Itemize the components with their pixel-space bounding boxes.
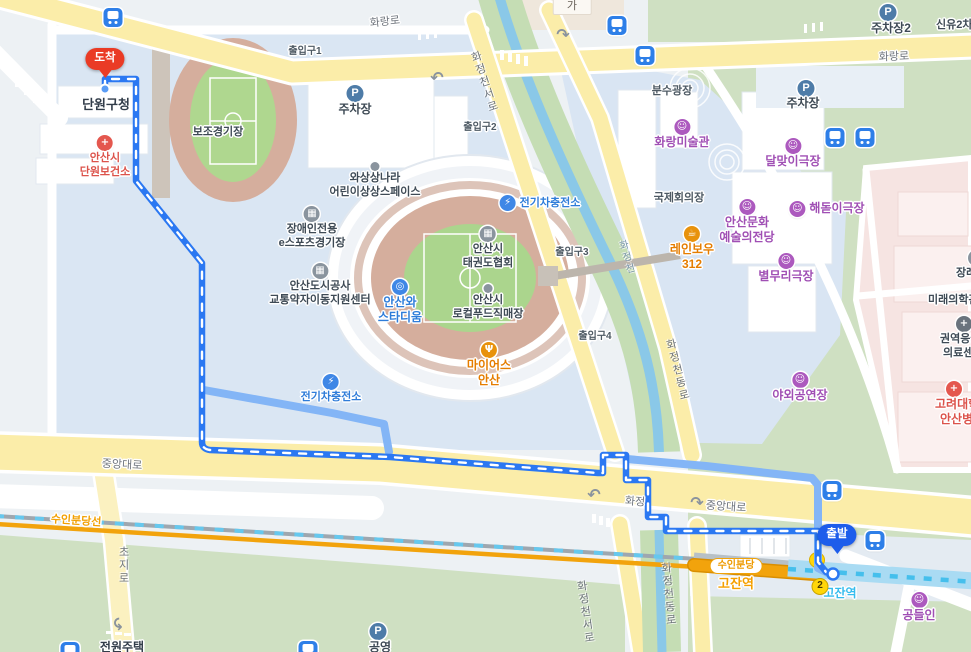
parking-icon[interactable]: P xyxy=(370,623,387,640)
departure-marker-label: 출발 xyxy=(817,524,856,546)
station-exit-2[interactable]: 2 xyxy=(812,578,829,595)
poi-taekwondo[interactable]: ▦ 안산시 태권도협회 xyxy=(463,226,514,269)
poi-localfood[interactable]: 안산시 로컬푸드직매장 xyxy=(453,284,524,320)
ev-charger-icon: ⚡ xyxy=(323,374,339,390)
uturn-arrow-icon: ↶ xyxy=(587,487,600,503)
road-label-hwajeong: 화정 xyxy=(624,495,645,509)
parking-icon[interactable]: P xyxy=(880,4,897,21)
route-start-dot xyxy=(828,569,839,580)
building-icon: ▦ xyxy=(480,226,496,242)
hospital-icon: + xyxy=(946,381,962,397)
stadium-icon: ◎ xyxy=(392,279,408,295)
cafe-icon: ☕ xyxy=(684,226,700,242)
bus-stop-icon[interactable] xyxy=(608,16,627,35)
poi-shinyu2cha: 신유2차 xyxy=(936,19,971,32)
ev-charger-icon: ⚡ xyxy=(500,195,516,211)
poi-health-center[interactable]: + 안산시 단원보건소 xyxy=(80,135,131,178)
poi-korea-univ-hospital[interactable]: + 고려대학교 안산병원 xyxy=(944,381,971,427)
parking2-label: 주차장2 xyxy=(871,22,911,36)
bus-stop-icon[interactable] xyxy=(636,46,655,65)
poi-rainbow-312[interactable]: ☕ 레인보우 312 xyxy=(670,226,714,272)
poi-arts-center[interactable]: ☺ 안산문화 예술의전당 xyxy=(719,199,774,245)
parking-top-label: 주차장 xyxy=(338,103,371,117)
bus-stop-icon[interactable] xyxy=(823,481,842,500)
poi-fountain-plaza[interactable]: 분수광장 xyxy=(652,85,692,98)
poi-myers[interactable]: Ψ 마이어스 안산 xyxy=(467,342,511,388)
poi-jeonwon-house: 전원주택 xyxy=(100,641,144,652)
marker-tail xyxy=(98,69,112,78)
map-canvas[interactable]: ▪▪▪▪ 가 화랑로 화랑로 중앙대로 화정 중앙대로 초지로 화정천서로 화정… xyxy=(0,0,971,652)
building-icon: ▦ xyxy=(304,206,320,222)
poi-esports-stadium[interactable]: ▦ 장애인전용 e스포츠경기장 xyxy=(279,206,346,249)
poi-mobility-center[interactable]: ▦ 안산도시공사 교통약자이동지원센터 xyxy=(269,263,370,306)
theater-icon: ☺ xyxy=(739,199,755,215)
poi-hwarang-museum[interactable]: ☺ 화랑미술관 xyxy=(654,119,709,150)
stage-icon: ☺ xyxy=(792,372,808,388)
bus-stop-icon[interactable] xyxy=(104,8,123,27)
restaurant-icon: Ψ xyxy=(481,342,497,358)
poi-ev-charge-1[interactable]: ⚡ 전기차충전소 xyxy=(500,195,581,211)
bus-stop-icon[interactable] xyxy=(299,641,318,652)
poi-dalmaji-theater[interactable]: ☺ 달맞이극장 xyxy=(765,138,820,169)
entrance-3-label: 출입구3 xyxy=(555,247,588,259)
road-label-jungang-left: 중앙대로 xyxy=(101,458,142,473)
poi-byulmuri-theater[interactable]: ☺ 별무리극장 xyxy=(758,253,813,284)
entrance-4-label: 출입구4 xyxy=(578,331,611,343)
hospital-icon: + xyxy=(97,135,113,151)
poi-funeral[interactable]: ▦ 장례식장 xyxy=(956,250,971,280)
station-label-gojan-suin[interactable]: 고잔역 xyxy=(718,577,754,592)
poi-intl-conference[interactable]: 국제회의장 xyxy=(654,192,705,205)
road-label-hwarangro-2: 화랑로 xyxy=(879,50,910,64)
marker-tail xyxy=(830,545,844,554)
poi-danwon-office[interactable]: 단원구청 xyxy=(82,98,130,113)
museum-icon: ☺ xyxy=(674,119,690,135)
route-end-dot xyxy=(101,85,110,94)
entrance-1-label: 출입구1 xyxy=(288,46,321,58)
bojo-stands xyxy=(152,42,170,198)
departure-marker[interactable]: 출발 xyxy=(817,524,856,554)
place-dot-icon xyxy=(371,162,380,171)
arrival-marker-label: 도착 xyxy=(85,48,124,70)
uturn-arrow-icon: ↶ xyxy=(112,617,128,630)
poi-wa-stadium[interactable]: ◎ 안산와 스타디움 xyxy=(378,279,422,325)
theater-icon: ☺ xyxy=(785,138,801,154)
poi-future-med[interactable]: 미래의학관 xyxy=(928,294,971,307)
apartment-block-label: ▪▪▪▪ 가 xyxy=(553,0,592,15)
uturn-arrow-icon: ↶ xyxy=(430,70,443,86)
station-badge-suinbundang[interactable]: 수인분당 xyxy=(710,558,763,574)
hospital-icon: + xyxy=(956,316,971,332)
poi-outdoor-stage[interactable]: ☺ 야외공연장 xyxy=(772,372,827,403)
bus-stop-icon[interactable] xyxy=(61,642,80,652)
poi-bojo-stadium[interactable]: 보조경기장 xyxy=(193,126,244,139)
theater-icon: ☺ xyxy=(778,253,794,269)
parking-icon[interactable]: P xyxy=(347,85,364,102)
theater-icon: ☺ xyxy=(789,201,805,217)
road-label-chojiro: 초지로 xyxy=(117,546,128,585)
place-dot-icon xyxy=(484,284,493,293)
poi-haedoji-theater[interactable]: ☺ 해돋이극장 xyxy=(789,201,864,217)
arrival-marker[interactable]: 도착 xyxy=(85,48,124,78)
parking-icon[interactable]: P xyxy=(798,80,815,97)
building-icon: ▦ xyxy=(312,263,328,279)
poi-imagination-space[interactable]: 와상상나라 어린이상상스페이스 xyxy=(329,162,420,198)
bus-stop-icon[interactable] xyxy=(866,531,885,550)
pet-icon: ☺ xyxy=(911,592,927,608)
curve-right-arrow-icon: ↷ xyxy=(556,27,569,43)
curve-right-arrow-icon: ↷ xyxy=(690,495,703,511)
bus-stop-icon[interactable] xyxy=(826,128,845,147)
poi-emergency-center[interactable]: + 권역응급 의료센터 xyxy=(954,316,971,359)
station-label-gojan-line4[interactable]: 고잔역 xyxy=(823,587,856,601)
poi-gongdeulin[interactable]: ☺ 공들인 xyxy=(902,592,935,623)
bus-stop-icon[interactable] xyxy=(856,128,875,147)
parking-public-label: 공영 xyxy=(369,641,391,652)
poi-ev-charge-2[interactable]: ⚡ 전기차충전소 xyxy=(301,374,362,404)
entrance-2-label: 출입구2 xyxy=(463,122,496,134)
parking-right-label: 주차장 xyxy=(786,97,819,111)
